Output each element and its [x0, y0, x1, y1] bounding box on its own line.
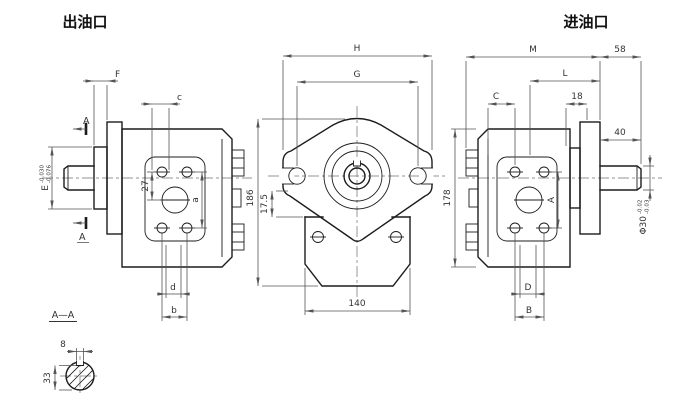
dim-d-label: d	[170, 283, 176, 293]
svg-text:27: 27	[141, 180, 151, 191]
dim-f-label: F	[115, 70, 120, 80]
dim-g-label: G	[354, 70, 361, 80]
dim-17-5-label: 17.5	[260, 194, 270, 214]
right-side-view: M 58 L C 18 40 A 178	[443, 45, 662, 321]
dim-a2-label: A	[547, 196, 557, 203]
dim-c2-label: C	[493, 92, 499, 102]
dim-b-label: b	[171, 306, 177, 316]
left-side-view: F c E -0.030 -0.076 A A 27	[40, 70, 253, 321]
svg-text:17.5: 17.5	[260, 194, 270, 214]
svg-text:E: E	[41, 185, 51, 191]
svg-text:a: a	[191, 197, 201, 203]
outlet-port-title: 出油口	[62, 13, 107, 31]
dim-186-label: 186	[246, 189, 256, 206]
svg-text:-0.02: -0.02	[638, 200, 644, 214]
front-view: H G 186 17.5 140	[246, 44, 447, 315]
dim-18-label: 18	[571, 92, 583, 102]
dim-d2-label: D	[525, 283, 532, 293]
dim-58-label: 58	[614, 45, 626, 55]
section-title: A—A	[52, 310, 75, 321]
dim-b2-label: B	[526, 306, 532, 316]
dim-40-label: 40	[614, 128, 626, 138]
svg-text:178: 178	[443, 189, 453, 206]
dim-c-label: c	[177, 93, 182, 103]
dim-27-label: 27	[141, 180, 151, 191]
svg-text:-0.03: -0.03	[645, 199, 651, 214]
dim-33-label: 33	[43, 372, 53, 383]
technical-drawing-page: 出油口 进油口 F	[0, 0, 700, 400]
gear-pump-drawing: 出油口 进油口 F	[0, 0, 700, 400]
svg-text:Φ30: Φ30	[639, 216, 649, 235]
dim-l-label: L	[562, 69, 567, 79]
section-marker-bottom: A	[79, 232, 86, 243]
dim-m-label: M	[529, 45, 537, 55]
dim-8-label: 8	[60, 340, 66, 350]
inlet-port-title: 进油口	[563, 13, 608, 31]
dim-e-label: E -0.030 -0.076	[40, 165, 53, 191]
svg-text:-0.030: -0.030	[40, 165, 46, 183]
section-view-aa: A—A 8 33	[43, 310, 102, 400]
dim-a-label: a	[191, 197, 201, 203]
dim-178-label: 178	[443, 189, 453, 206]
section-marker-top: A	[83, 116, 90, 127]
dim-h-label: H	[354, 44, 361, 54]
dim-140-label: 140	[348, 299, 365, 309]
svg-text:A: A	[547, 196, 557, 203]
svg-text:186: 186	[246, 189, 256, 206]
svg-text:33: 33	[43, 372, 53, 383]
dim-phi30-label: Φ30 -0.02 -0.03	[638, 199, 651, 234]
svg-text:-0.076: -0.076	[47, 165, 53, 183]
